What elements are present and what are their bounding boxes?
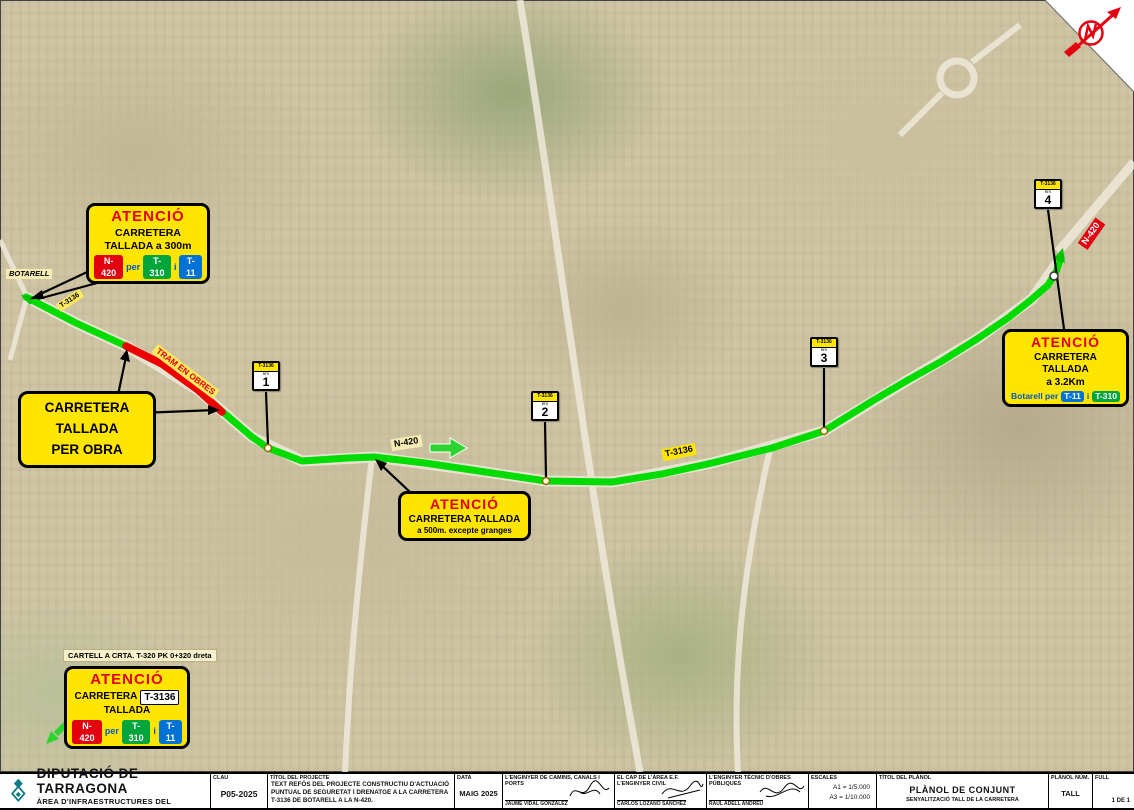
note-line: CARRETERA	[27, 398, 147, 419]
clau-cell: CLAU P05-2025	[210, 774, 267, 808]
sheet-cell: FULL 1 DE 1	[1092, 774, 1134, 808]
map-corner	[1045, 0, 1134, 92]
sign-line: CARRETERA TALLADA	[1010, 352, 1121, 377]
km-post-number: 4	[1036, 194, 1060, 207]
warning-sign-south: ATENCIÓ CARRETERA T-3136 TALLADA N-420 p…	[64, 666, 190, 749]
sign-title: ATENCIÓ	[72, 671, 182, 690]
km-post-2: T-3136 km 2	[531, 391, 559, 421]
signature	[566, 778, 612, 804]
engineer2-cell: EL CAP DE L'ÀREA E.F. L'ENGINYER CIVIL C…	[614, 774, 706, 808]
sign-word: i	[153, 726, 156, 737]
sheet-value: 1 DE 1	[1093, 798, 1134, 804]
organization-cell: DIPUTACIÓ DE TARRAGONA ÀREA D'INFRAESTRU…	[0, 774, 210, 808]
plan-number-value: TALL	[1049, 789, 1092, 798]
sign-line: TALLADA a 300m	[94, 240, 202, 253]
date-cell: DATA MAIG 2025	[454, 774, 502, 808]
project-title-cell: TÍTOL DEL PROJECTE TEXT REFÓS DEL PROJEC…	[267, 774, 454, 808]
plan-sheet: BOTARELL T-3136 TRAM EN OBRES N-420 T-31…	[0, 0, 1134, 810]
signature	[756, 778, 806, 804]
km-post-number: 1	[254, 376, 278, 389]
date-label: DATA	[455, 774, 502, 781]
clau-label: CLAU	[211, 774, 267, 781]
sign-word: i	[174, 262, 177, 273]
plan-title: PLÀNOL DE CONJUNT	[877, 785, 1048, 795]
km-post-3: T-3136 km 3	[810, 337, 838, 367]
scale-a3: A3 = 1/10.000	[809, 793, 870, 803]
sign-title: ATENCIÓ	[406, 496, 523, 514]
scale-a1: A1 = 1/5.000	[809, 783, 870, 793]
organization-name: DIPUTACIÓ DE TARRAGONA	[37, 767, 210, 797]
warning-sign-mid: ATENCIÓ CARRETERA TALLADA a 500m. except…	[398, 491, 531, 541]
sign-line: a 3.2Km	[1010, 377, 1121, 390]
sheet-label: FULL	[1093, 774, 1134, 781]
organization-dept: ÀREA D'INFRAESTRUCTURES DEL TERRITORI	[37, 797, 210, 810]
project-text: TEXT REFÓS DEL PROJECTE CONSTRUCTIU D'AC…	[268, 781, 454, 805]
scales-cell: ESCALES A1 = 1/5.000 A3 = 1/10.000	[808, 774, 876, 808]
road-badge-n420: N-420	[94, 255, 123, 279]
title-block: DIPUTACIÓ DE TARRAGONA ÀREA D'INFRAESTRU…	[0, 772, 1134, 810]
road-badge-t310: T-310	[143, 255, 171, 279]
road-badge-t11: T-11	[1061, 391, 1084, 402]
sign-word: i	[1087, 391, 1089, 402]
plan-number-cell: PLÀNOL NÚM. TALL	[1048, 774, 1092, 808]
engineer1-cell: L'ENGINYER DE CAMINS, CANALS I PORTS JAU…	[502, 774, 614, 808]
plan-number-label: PLÀNOL NÚM.	[1049, 774, 1092, 781]
road-badge-t310: T-310	[1092, 391, 1120, 402]
road-badge-t11: T-11	[179, 255, 202, 279]
km-post-number: 3	[812, 352, 836, 365]
place-label-botarell: BOTARELL	[6, 269, 52, 279]
km-post-1: T-3136 km 1	[252, 361, 280, 391]
scales-label: ESCALES	[809, 774, 876, 781]
south-sign-location-note: CARTELL A CRTA. T-320 PK 0+320 dreta	[63, 649, 217, 662]
clau-value: P05-2025	[211, 789, 267, 799]
plan-title-cell: TÍTOL DEL PLÀNOL PLÀNOL DE CONJUNT SENYA…	[876, 774, 1048, 808]
engineer1-name: JAUME VIDAL GONZALEZ	[505, 800, 568, 807]
sign-word: per	[105, 726, 119, 737]
warning-sign-east: ATENCIÓ CARRETERA TALLADA a 3.2Km Botare…	[1002, 329, 1129, 407]
n420-direction-arrow	[430, 438, 467, 458]
road-badge-t310: T-310	[122, 720, 150, 744]
engineer2-name: CARLOS LOZANO SANCHEZ	[617, 800, 686, 807]
road-badge-t11: T-11	[159, 720, 182, 744]
plan-title-label: TÍTOL DEL PLÀNOL	[877, 774, 1048, 781]
engineer3-name: RAUL ADELL ANDREU	[709, 800, 763, 807]
plan-subtitle: SENYALITZACIÓ TALL DE LA CARRETERA	[877, 797, 1048, 803]
road-badge-t3136: T-3136	[140, 690, 179, 706]
closure-note-box: CARRETERA TALLADA PER OBRA	[18, 391, 156, 468]
date-value: MAIG 2025	[455, 789, 502, 798]
sign-word: Botarell per	[1011, 391, 1058, 402]
sign-line: CARRETERA TALLADA	[406, 514, 523, 527]
warning-sign-west: ATENCIÓ CARRETERA TALLADA a 300m N-420 p…	[86, 203, 210, 284]
sign-title: ATENCIÓ	[94, 208, 202, 227]
sign-title: ATENCIÓ	[1010, 334, 1121, 352]
diputacio-tarragona-logo	[6, 776, 31, 806]
note-line: TALLADA	[27, 419, 147, 440]
sign-line: TALLADA	[72, 705, 182, 718]
sign-word: per	[126, 262, 140, 273]
km-post-4: T-3136 km 4	[1034, 179, 1062, 209]
sign-line: CARRETERA	[94, 227, 202, 240]
sign-line: a 500m. excepte granges	[406, 526, 523, 536]
road-badge-n420: N-420	[72, 720, 102, 744]
sign-line: CARRETERA	[75, 691, 138, 704]
engineer3-cell: L'ENGINYER TÈCNIC D'OBRES PÚBLIQUES RAUL…	[706, 774, 808, 808]
note-line: PER OBRA	[27, 440, 147, 461]
km-post-number: 2	[533, 406, 557, 419]
